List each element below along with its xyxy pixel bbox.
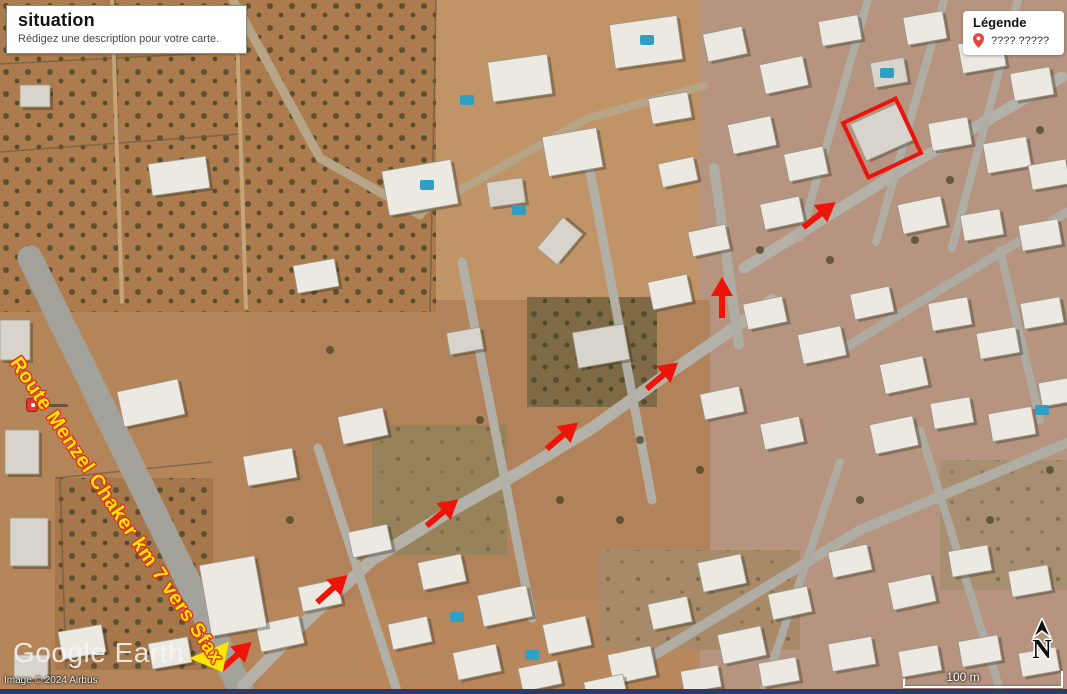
scale-bar-tick-left [903,679,905,688]
legend-item[interactable]: ???? ????? [973,33,1056,48]
map-pin-icon [973,33,984,48]
map-title[interactable]: situation [18,10,236,31]
imagery-credit: Image © 2024 Airbus [4,675,98,686]
route-arrow [537,412,587,460]
legend-title: Légende [973,15,1056,30]
scale-bar-tick-right [1061,671,1063,688]
route-arrow [417,489,467,537]
map-title-box[interactable]: situation Rédigez une description pour v… [6,5,247,54]
map-subtitle[interactable]: Rédigez une description pour votre carte… [18,33,236,45]
scale-bar-label: 100 m [928,670,998,684]
route-arrow [637,352,687,400]
north-letter: N [1022,638,1062,660]
legend-item-label: ???? ????? [991,35,1049,47]
scale-bar-line [903,686,1063,688]
route-arrow [794,191,845,239]
legend-box[interactable]: Légende ???? ????? [963,11,1064,55]
google-earth-watermark: Google Earth [13,637,184,669]
route-arrow [307,565,357,614]
north-indicator: N [1022,618,1062,660]
bottom-edge-strip [0,689,1067,694]
target-parcel-rectangle [840,96,923,180]
route-arrow [709,276,735,320]
google-earth-map-view[interactable]: Route Menzel Chaker km 7 vers Sfax situa… [0,0,1067,694]
